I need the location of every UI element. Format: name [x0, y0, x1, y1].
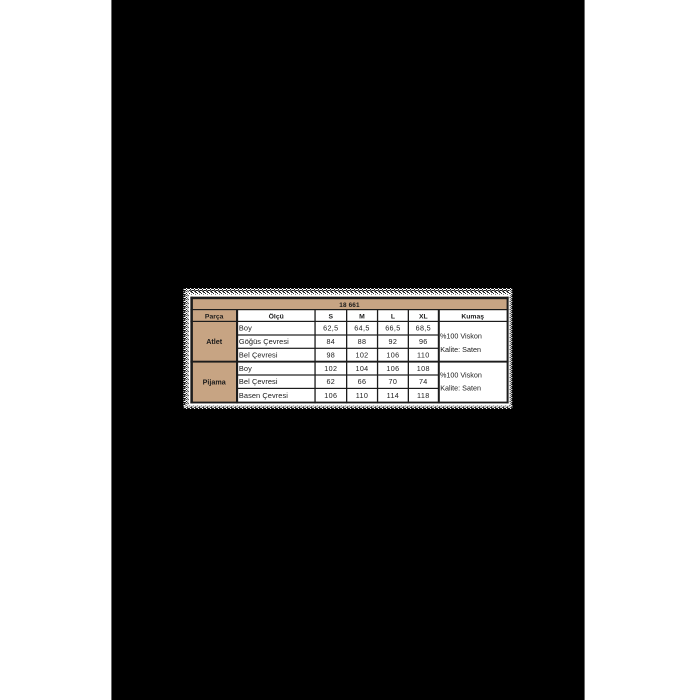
svg-text:Göğüs Çevresi: Göğüs Çevresi — [239, 337, 289, 346]
svg-text:92: 92 — [389, 337, 398, 346]
svg-text:62: 62 — [326, 377, 335, 386]
svg-text:118: 118 — [417, 391, 430, 400]
svg-text:M: M — [359, 314, 365, 321]
svg-text:66,5: 66,5 — [385, 324, 400, 333]
svg-text:102: 102 — [355, 351, 368, 360]
svg-text:Pijama: Pijama — [203, 378, 227, 387]
svg-text:Boy: Boy — [239, 324, 252, 333]
svg-text:68,5: 68,5 — [416, 324, 431, 333]
svg-text:108: 108 — [417, 364, 430, 373]
svg-text:Bel Çevresi: Bel Çevresi — [239, 377, 278, 386]
svg-text:L: L — [391, 314, 395, 321]
svg-text:Boy: Boy — [239, 364, 252, 373]
svg-text:18 661: 18 661 — [339, 302, 360, 309]
svg-text:110: 110 — [417, 351, 430, 360]
svg-text:64,5: 64,5 — [354, 324, 369, 333]
svg-text:104: 104 — [355, 364, 368, 373]
svg-text:Parça: Parça — [205, 314, 224, 321]
svg-text:Kalite: Saten: Kalite: Saten — [440, 383, 481, 392]
svg-text:106: 106 — [324, 391, 337, 400]
svg-text:102: 102 — [324, 364, 337, 373]
svg-text:106: 106 — [386, 351, 399, 360]
svg-text:62,5: 62,5 — [323, 324, 338, 333]
svg-text:Kalite: Saten: Kalite: Saten — [440, 345, 481, 354]
svg-text:66: 66 — [358, 377, 367, 386]
svg-text:110: 110 — [356, 391, 369, 400]
svg-text:98: 98 — [326, 351, 335, 360]
svg-text:%100 Viskon: %100 Viskon — [440, 331, 482, 340]
svg-text:114: 114 — [387, 391, 400, 400]
svg-text:Atlet: Atlet — [206, 337, 223, 346]
svg-text:Basen Çevresi: Basen Çevresi — [239, 391, 288, 400]
svg-text:84: 84 — [326, 337, 335, 346]
svg-text:70: 70 — [389, 377, 398, 386]
svg-text:%100 Viskon: %100 Viskon — [440, 370, 482, 379]
svg-text:Bel Çevresi: Bel Çevresi — [239, 351, 278, 360]
svg-text:S: S — [329, 314, 334, 321]
svg-text:Ölçü: Ölçü — [269, 312, 284, 321]
svg-text:XL: XL — [419, 314, 428, 321]
svg-text:Kumaş: Kumaş — [461, 314, 484, 321]
svg-text:106: 106 — [386, 364, 399, 373]
svg-text:88: 88 — [358, 337, 367, 346]
svg-text:74: 74 — [419, 377, 428, 386]
svg-text:96: 96 — [419, 337, 428, 346]
